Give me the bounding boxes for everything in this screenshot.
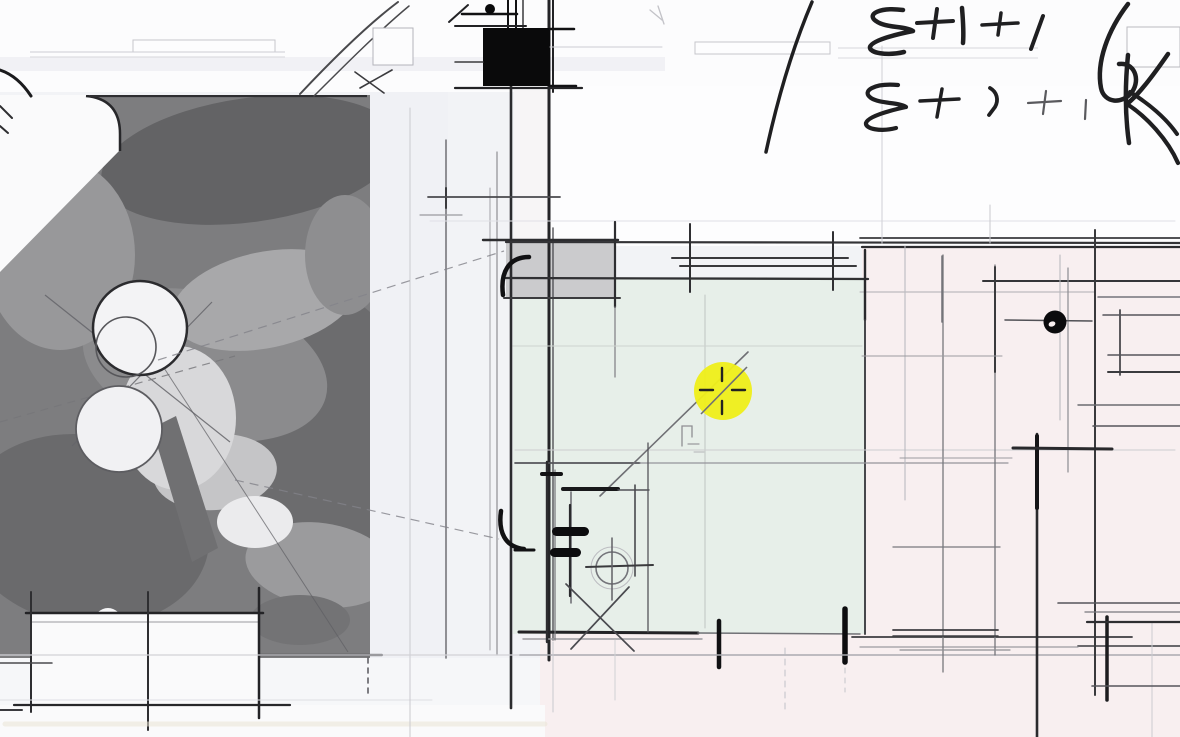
ink-dot-blob	[1044, 311, 1067, 334]
plan-tree-circle-lower	[76, 386, 162, 472]
highlight-cursor[interactable]	[694, 362, 752, 420]
room-pink-bottom	[540, 632, 1180, 737]
fixture-ink-bar-2	[550, 548, 581, 557]
room-green	[513, 278, 865, 634]
fixture-ink-bar-1	[552, 527, 589, 536]
plan-drawing-svg	[0, 0, 1180, 737]
wall-black-square	[483, 28, 550, 86]
material-texture-panel	[0, 78, 415, 658]
column-dot	[485, 4, 495, 14]
plan-tree-circle-upper	[93, 281, 187, 375]
wall-gray-fill	[506, 240, 616, 298]
sketch-canvas[interactable]: 3+1+1 3+2+1	[0, 0, 1180, 737]
